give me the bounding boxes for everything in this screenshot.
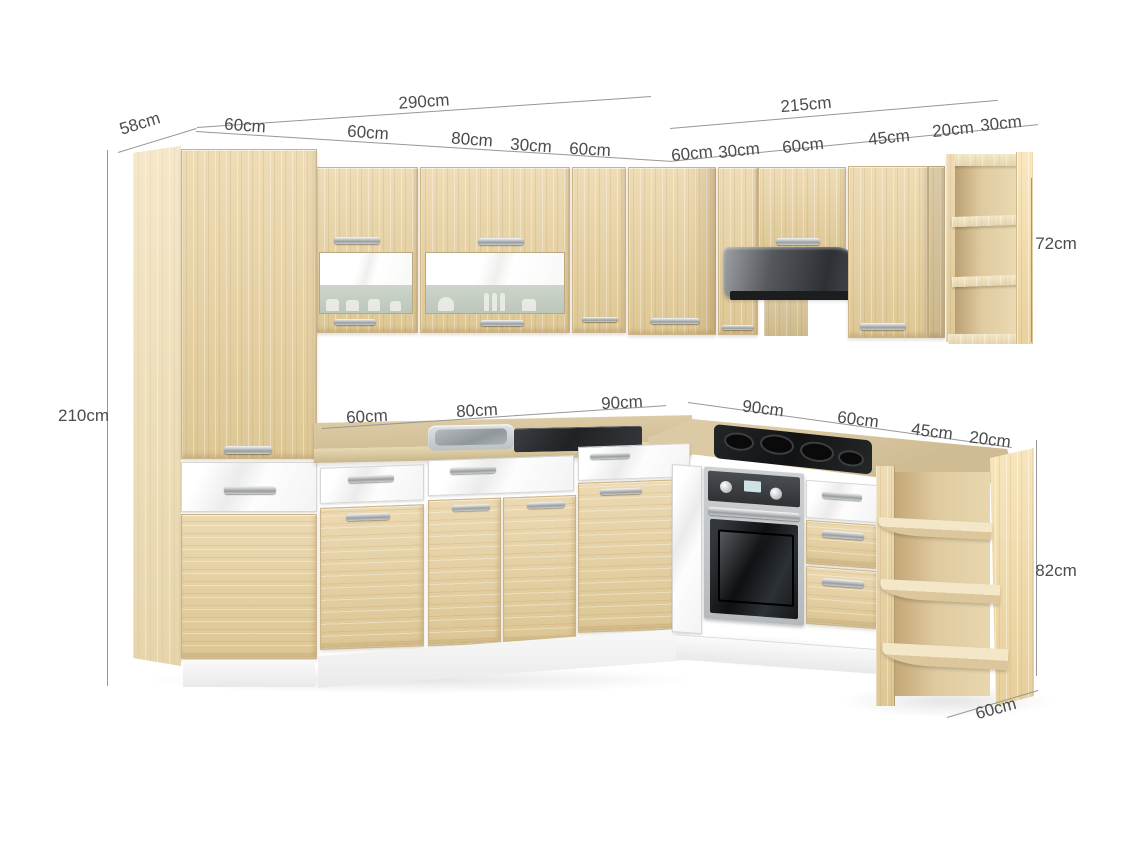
drawer-unit-top bbox=[806, 480, 878, 523]
oven-door bbox=[710, 519, 798, 619]
sink-cabinet-door-right bbox=[503, 495, 576, 644]
kitchen-dimension-diagram: 290cm 215cm 58cm 60cm 60cm 80cm 30cm 60c… bbox=[0, 0, 1126, 845]
dimension-label: 30cm bbox=[507, 134, 554, 157]
glass-panel bbox=[425, 252, 565, 314]
dimension-label: 60cm bbox=[344, 121, 391, 144]
dimension-label: 60cm bbox=[779, 134, 827, 159]
tall-cabinet-side-panel bbox=[133, 146, 181, 674]
tall-cabinet-plinth bbox=[183, 659, 315, 687]
dimension-label: 30cm bbox=[715, 139, 763, 164]
wall-cabinet-45 bbox=[848, 166, 928, 338]
base-plinth-right bbox=[676, 634, 880, 674]
corner-shading bbox=[688, 168, 716, 334]
cabinet-handle bbox=[650, 318, 700, 324]
sink-cabinet-door-left bbox=[428, 498, 501, 647]
cabinet-handle bbox=[478, 238, 524, 245]
oven-display bbox=[744, 480, 761, 492]
dimension-label: 60cm bbox=[834, 407, 882, 432]
cooker-hood bbox=[724, 247, 858, 297]
dimension-label: 290cm bbox=[394, 90, 453, 114]
cabinet-handle bbox=[582, 317, 618, 322]
oven-knob bbox=[770, 487, 782, 500]
dimension-label: 90cm bbox=[739, 396, 787, 421]
dimension-label: 60cm bbox=[567, 139, 614, 161]
dimension-label: 60cm bbox=[344, 406, 391, 428]
tall-cabinet-upper-door bbox=[181, 149, 317, 459]
dimension-label: 90cm bbox=[599, 392, 646, 414]
sink-cabinet-drawer bbox=[428, 455, 574, 496]
burner bbox=[838, 449, 864, 468]
dimension-label: 80cm bbox=[448, 128, 495, 151]
base-run-left bbox=[318, 451, 690, 656]
wall-cabinet-30 bbox=[572, 167, 626, 333]
wall-corner-shelf-unit bbox=[946, 154, 1032, 344]
cabinet-handle bbox=[776, 238, 820, 245]
cabinet-handle bbox=[224, 446, 272, 454]
dimension-label: 45cm bbox=[865, 126, 913, 151]
sink bbox=[428, 424, 514, 451]
oven-knob bbox=[720, 481, 732, 494]
dimension-label: 72cm bbox=[1033, 234, 1079, 254]
cabinet-handle bbox=[480, 320, 524, 326]
wall-filler-20 bbox=[928, 166, 945, 338]
burner bbox=[800, 440, 834, 464]
cabinet-handle bbox=[860, 323, 906, 330]
dimension-label: 82cm bbox=[1033, 561, 1079, 581]
drawer-unit-mid bbox=[806, 520, 878, 569]
dimension-label: 30cm bbox=[977, 112, 1025, 137]
dimension-label: 58cm bbox=[115, 108, 165, 141]
cooker-hood-underside bbox=[730, 291, 852, 300]
drawer-unit-bottom bbox=[806, 566, 878, 629]
dimension-label: 60cm bbox=[221, 114, 268, 137]
burner bbox=[760, 433, 794, 457]
corner-filler bbox=[672, 464, 702, 634]
oven bbox=[704, 466, 804, 625]
base-drawer-60 bbox=[320, 464, 424, 504]
oven-control-panel bbox=[708, 471, 800, 508]
dimension-label: 80cm bbox=[454, 400, 501, 422]
dimension-label: 20cm bbox=[929, 118, 977, 143]
tall-cabinet-lower-door bbox=[181, 514, 317, 659]
burner bbox=[724, 431, 754, 452]
dimension-label: 60cm bbox=[668, 142, 716, 167]
dimension-line bbox=[1031, 178, 1032, 342]
glass-panel bbox=[319, 252, 413, 314]
cabinet-handle bbox=[334, 319, 376, 325]
drawer-handle bbox=[224, 486, 276, 494]
base-door-60 bbox=[320, 504, 424, 650]
dimension-label: 210cm bbox=[58, 406, 104, 426]
cabinet-handle bbox=[334, 237, 380, 244]
cabinet-handle bbox=[722, 325, 754, 330]
dimension-line bbox=[1036, 440, 1037, 676]
base-corner-shelf-unit bbox=[876, 448, 1036, 708]
